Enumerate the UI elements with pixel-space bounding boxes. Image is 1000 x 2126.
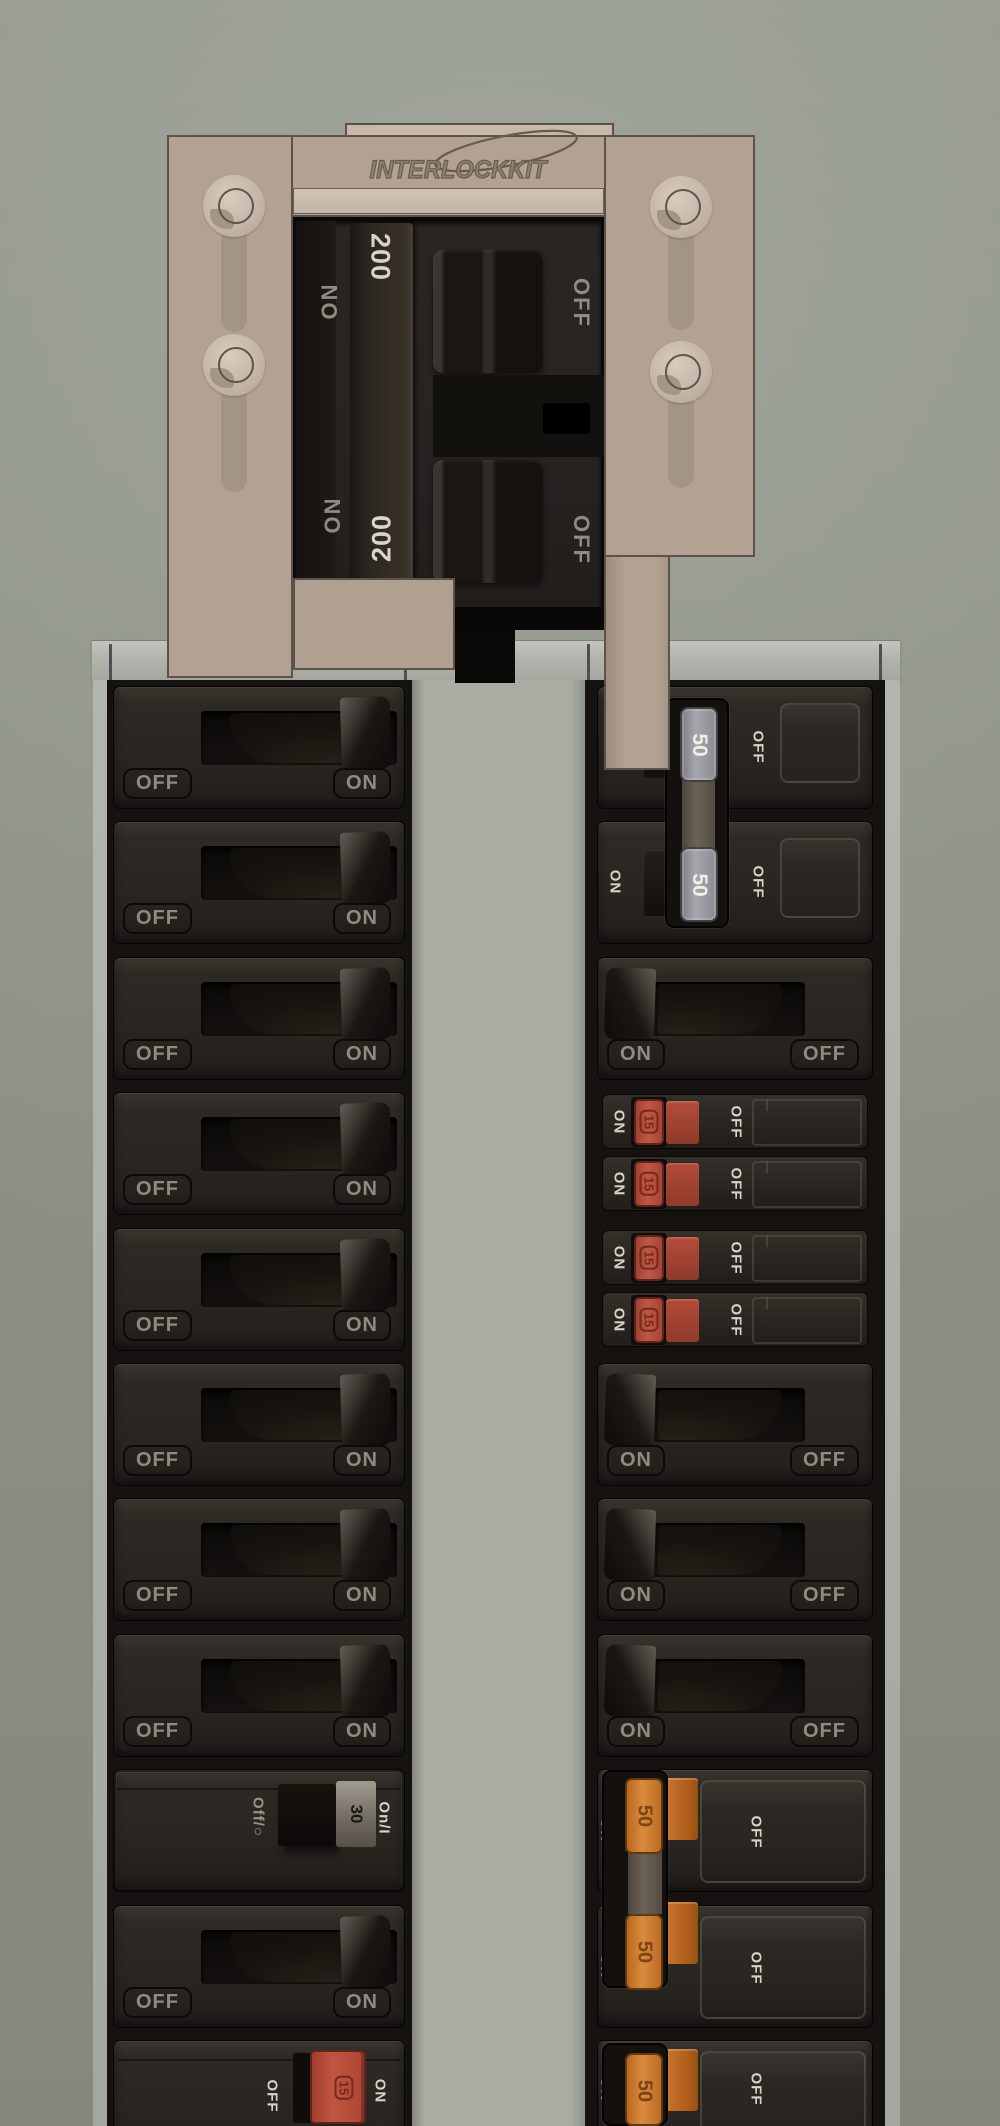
breaker-handle[interactable]: 15 bbox=[634, 1235, 664, 1281]
handle-tie-bar bbox=[628, 1850, 662, 1914]
amp-rating-label: 15 bbox=[640, 1172, 659, 1196]
breaker-right-7[interactable]: ON OFF bbox=[597, 1498, 873, 1621]
on-label: ON bbox=[611, 1246, 628, 1271]
on-label: On/I bbox=[376, 1801, 393, 1834]
breaker-handle-tip[interactable] bbox=[340, 1102, 392, 1176]
breaker-left-10[interactable]: OFF ON bbox=[113, 1905, 405, 2028]
tie-handle-50[interactable]: 50 bbox=[625, 1914, 663, 1990]
breaker-handle-tip[interactable] bbox=[340, 1915, 392, 1989]
breaker-handle-face[interactable]: 30 bbox=[336, 1781, 376, 1847]
tie-handle-50[interactable]: 50 bbox=[625, 1778, 663, 1854]
on-label: ON bbox=[372, 2079, 389, 2104]
screw-icon[interactable] bbox=[650, 341, 712, 403]
breaker-handle[interactable] bbox=[230, 1255, 354, 1305]
breaker-handle-tip[interactable] bbox=[340, 1644, 392, 1718]
screw-icon[interactable] bbox=[650, 176, 712, 238]
breaker-left-11-15amp[interactable]: OFF 15 ON bbox=[113, 2040, 405, 2126]
breaker-handle[interactable] bbox=[230, 1119, 354, 1169]
main-rating-top: 200 bbox=[365, 233, 396, 281]
main-rating-bottom: 200 bbox=[367, 514, 398, 562]
test-window bbox=[752, 1099, 862, 1146]
off-label: OFF bbox=[750, 866, 767, 899]
off-label: OFF bbox=[123, 1716, 192, 1747]
breaker-left-7[interactable]: OFF ON bbox=[113, 1498, 405, 1621]
off-label: OFF bbox=[123, 1445, 192, 1476]
main-off-label-bottom: OFF bbox=[568, 515, 594, 565]
breaker-left-6[interactable]: OFF ON bbox=[113, 1363, 405, 1486]
on-label: ON bbox=[333, 1174, 391, 1205]
amp-rating-label: 50 bbox=[633, 2080, 656, 2102]
off-label: OFF bbox=[790, 1716, 859, 1747]
main-breaker-paddle-bottom[interactable] bbox=[433, 460, 543, 583]
breaker-right-4-tandem[interactable]: ON 15 OFF ON 15 OFF bbox=[597, 1092, 873, 1215]
interlockkit-logo: INTERLOCKKIT bbox=[357, 156, 558, 186]
off-label: OFF bbox=[790, 1580, 859, 1611]
breaker-handle-tip[interactable] bbox=[666, 1299, 699, 1342]
test-window bbox=[700, 1780, 866, 1883]
tandem-switch[interactable]: ON 15 OFF bbox=[602, 1230, 868, 1285]
test-window bbox=[752, 1161, 862, 1208]
tie-handle-50[interactable]: 50 bbox=[680, 707, 718, 782]
interlock-plate-lower-left bbox=[293, 578, 455, 670]
breaker-right-2-50amp[interactable]: ON OFF bbox=[597, 821, 873, 944]
main-breaker-200amp[interactable]: ON ON 200 200 OFF OFF bbox=[293, 217, 604, 630]
on-label: ON bbox=[333, 1445, 391, 1476]
breaker-handle-tip[interactable] bbox=[604, 1508, 656, 1582]
test-window bbox=[752, 1235, 862, 1282]
breaker-handle[interactable]: 15 bbox=[634, 1099, 664, 1145]
amp-rating-label: 15 bbox=[640, 1308, 659, 1332]
handle-tie-frame: 50 50 bbox=[602, 1770, 668, 1988]
breaker-handle[interactable] bbox=[230, 848, 354, 898]
amp-rating-label: 15 bbox=[640, 1246, 659, 1270]
breaker-left-8[interactable]: OFF ON bbox=[113, 1634, 405, 1757]
off-label: OFF bbox=[728, 1242, 745, 1275]
on-label: ON bbox=[333, 1987, 391, 2018]
right-breaker-column: ON OFF ON OFF 50 50 ON OFF bbox=[585, 680, 885, 2126]
breaker-handle-tip[interactable] bbox=[340, 831, 392, 905]
panel-pin-icon bbox=[587, 644, 590, 681]
screw-icon[interactable] bbox=[203, 175, 265, 237]
amp-rating-label: 15 bbox=[335, 2076, 354, 2100]
breaker-handle[interactable] bbox=[230, 984, 354, 1034]
off-label: OFF bbox=[264, 2080, 281, 2113]
off-label: OFF bbox=[123, 1039, 192, 1070]
handle-tie-frame: 50 50 bbox=[665, 698, 729, 928]
off-label: OFF bbox=[123, 1174, 192, 1205]
off-label: OFF bbox=[123, 768, 192, 799]
breaker-handle[interactable]: 15 bbox=[310, 2050, 366, 2124]
breaker-handle-tip[interactable] bbox=[666, 1163, 699, 1206]
breaker-left-2[interactable]: OFF ON bbox=[113, 821, 405, 944]
breaker-handle[interactable]: 15 bbox=[634, 1161, 664, 1207]
main-breaker-foot bbox=[455, 630, 515, 683]
tie-handle-50[interactable]: 50 bbox=[680, 847, 718, 922]
main-breaker-flange bbox=[293, 188, 604, 214]
breaker-left-4[interactable]: OFF ON bbox=[113, 1092, 405, 1215]
breaker-handle-tip[interactable] bbox=[340, 1508, 392, 1582]
main-breaker-paddle-top[interactable] bbox=[433, 250, 543, 373]
breaker-right-6[interactable]: ON OFF bbox=[597, 1363, 873, 1486]
on-label: ON bbox=[607, 1039, 665, 1070]
breaker-handle[interactable] bbox=[664, 1902, 698, 1964]
off-label: OFF bbox=[123, 1310, 192, 1341]
breaker-handle-tip[interactable] bbox=[340, 696, 392, 770]
breaker-handle[interactable] bbox=[230, 713, 354, 763]
on-label: ON bbox=[607, 1445, 665, 1476]
on-label: ON bbox=[333, 1310, 391, 1341]
off-label: OFF bbox=[123, 1987, 192, 2018]
handle-tie-frame: 50 bbox=[602, 2043, 668, 2126]
interlock-slide-arm[interactable] bbox=[604, 555, 670, 770]
breaker-handle-tip[interactable] bbox=[666, 1101, 699, 1144]
test-window bbox=[780, 703, 860, 783]
breaker-handle-tip[interactable] bbox=[340, 967, 392, 1041]
main-off-label-top: OFF bbox=[568, 278, 594, 328]
breaker-handle-tip[interactable] bbox=[666, 1237, 699, 1280]
on-label: ON bbox=[611, 1308, 628, 1333]
screw-icon[interactable] bbox=[203, 334, 265, 396]
panel-pin-icon bbox=[109, 644, 112, 681]
left-breaker-column: OFF ON OFF ON OFF ON OFF ON bbox=[107, 680, 412, 2126]
amp-rating-label: 30 bbox=[346, 1805, 366, 1824]
off-label: OFF bbox=[728, 1168, 745, 1201]
test-window bbox=[752, 1297, 862, 1344]
breaker-handle-tip[interactable] bbox=[604, 1373, 656, 1447]
breaker-handle[interactable] bbox=[278, 1784, 336, 1846]
breaker-left-3[interactable]: OFF ON bbox=[113, 957, 405, 1080]
breaker-handle-tip[interactable] bbox=[340, 1238, 392, 1312]
main-on-label-bottom: ON bbox=[320, 497, 346, 534]
breaker-left-9-30amp[interactable]: Off/○ 30 On/I bbox=[113, 1769, 405, 1892]
amp-rating-label: 15 bbox=[640, 1110, 659, 1134]
breaker-panel: OFF ON OFF ON OFF ON OFF ON bbox=[0, 0, 1000, 2126]
off-label: OFF bbox=[750, 731, 767, 764]
on-label: ON bbox=[333, 1716, 391, 1747]
breaker-handle[interactable] bbox=[230, 1390, 354, 1440]
tandem-switch[interactable]: ON 15 OFF bbox=[602, 1156, 868, 1211]
test-window bbox=[780, 838, 860, 918]
breaker-right-5-tandem[interactable]: ON 15 OFF ON 15 OFF bbox=[597, 1228, 873, 1351]
panel-center-rail bbox=[412, 680, 585, 2126]
tandem-switch[interactable]: ON 15 OFF bbox=[602, 1094, 868, 1149]
breaker-right-8[interactable]: ON OFF bbox=[597, 1634, 873, 1757]
off-label: OFF bbox=[790, 1039, 859, 1070]
on-label: ON bbox=[607, 1580, 665, 1611]
on-label: ON bbox=[333, 1039, 391, 1070]
breaker-handle[interactable] bbox=[664, 2049, 698, 2111]
off-label: OFF bbox=[728, 1106, 745, 1139]
test-window bbox=[700, 2051, 866, 2126]
on-label: ON bbox=[333, 768, 391, 799]
off-label: OFF bbox=[728, 1304, 745, 1337]
on-label: ON bbox=[333, 903, 391, 934]
amp-rating-label: 50 bbox=[633, 1941, 656, 1963]
breaker-handle[interactable] bbox=[230, 1525, 354, 1575]
on-label: ON bbox=[607, 870, 624, 895]
breaker-left-5[interactable]: OFF ON bbox=[113, 1228, 405, 1351]
amp-rating-label: 50 bbox=[687, 873, 711, 896]
breaker-handle-tip[interactable] bbox=[604, 967, 656, 1041]
off-label: OFF bbox=[123, 903, 192, 934]
on-label: ON bbox=[333, 1580, 391, 1611]
off-label: Off/○ bbox=[250, 1797, 267, 1837]
off-label: OFF bbox=[790, 1445, 859, 1476]
test-window bbox=[700, 1916, 866, 2019]
amp-rating-label: 50 bbox=[633, 1805, 656, 1827]
handle-tie-bar bbox=[682, 780, 715, 854]
interlock-slot bbox=[543, 403, 590, 434]
tie-handle-50[interactable]: 50 bbox=[625, 2053, 663, 2126]
panel-right-rail bbox=[885, 680, 900, 2126]
panel-pin-icon bbox=[879, 644, 882, 681]
tandem-switch[interactable]: ON 15 OFF bbox=[602, 1292, 868, 1347]
breaker-right-3[interactable]: ON OFF bbox=[597, 957, 873, 1080]
breaker-handle[interactable]: 15 bbox=[634, 1297, 664, 1343]
on-label: ON bbox=[611, 1172, 628, 1197]
breaker-handle-tip[interactable] bbox=[340, 1373, 392, 1447]
breaker-handle[interactable] bbox=[664, 1778, 698, 1840]
on-label: ON bbox=[607, 1716, 665, 1747]
breaker-left-1[interactable]: OFF ON bbox=[113, 686, 405, 809]
breaker-handle[interactable] bbox=[230, 1661, 354, 1711]
breaker-handle[interactable] bbox=[230, 1932, 354, 1982]
amp-rating-label: 50 bbox=[687, 733, 711, 756]
main-on-label-top: ON bbox=[317, 283, 343, 320]
off-label: OFF bbox=[123, 1580, 192, 1611]
on-label: ON bbox=[611, 1110, 628, 1135]
panel-left-rail bbox=[93, 680, 107, 2126]
breaker-handle-tip[interactable] bbox=[604, 1644, 656, 1718]
main-breaker-left-band bbox=[296, 221, 336, 607]
main-breaker-handle-bar[interactable] bbox=[350, 223, 413, 623]
